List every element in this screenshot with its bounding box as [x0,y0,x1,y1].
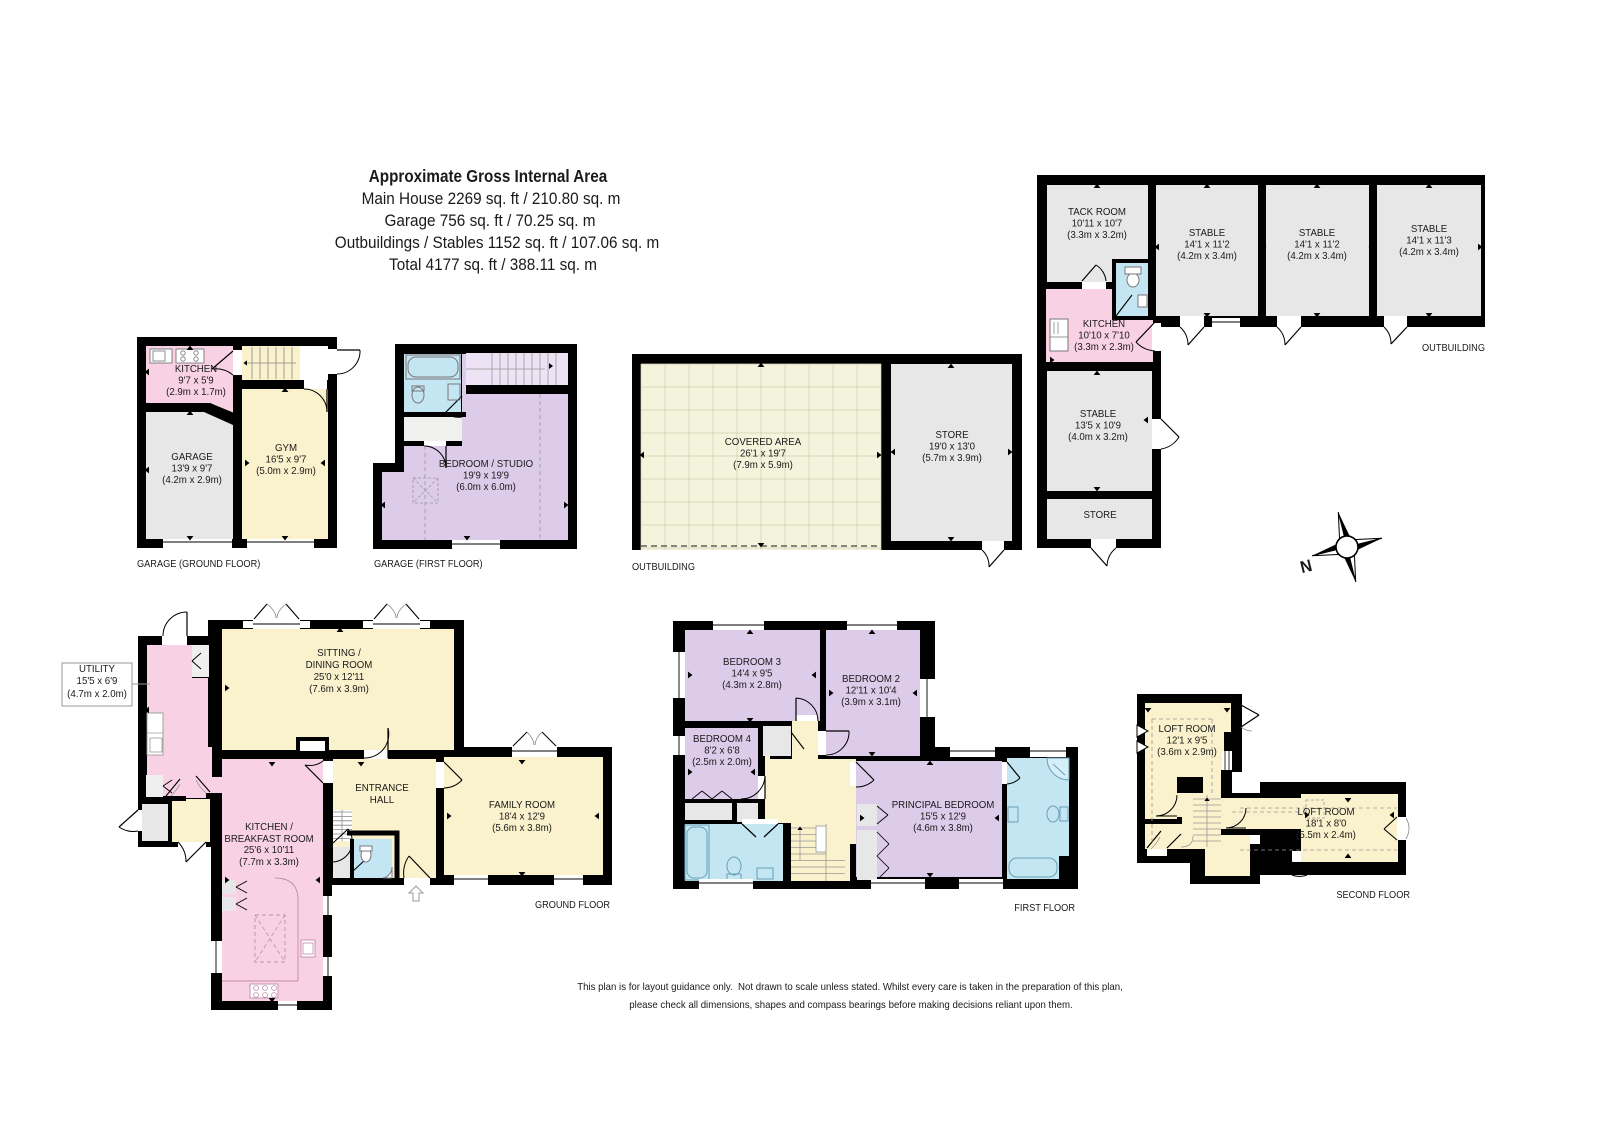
svg-text:STORE: STORE [935,430,968,441]
svg-text:BEDROOM 4: BEDROOM 4 [693,734,751,745]
svg-text:14'4 x 9'5: 14'4 x 9'5 [732,669,773,680]
svg-text:(7.6m x 3.9m): (7.6m x 3.9m) [309,684,369,695]
svg-text:Garage 756 sq. ft / 70.25 sq.: Garage 756 sq. ft / 70.25 sq. m [384,211,595,230]
svg-text:19'9 x 19'9: 19'9 x 19'9 [463,471,509,482]
svg-text:KITCHEN: KITCHEN [175,364,217,375]
svg-text:10'10 x 7'10: 10'10 x 7'10 [1078,331,1130,342]
svg-text:Approximate Gross Internal Are: Approximate Gross Internal Area [369,166,608,186]
svg-text:GYM: GYM [275,443,297,454]
svg-text:SECOND FLOOR: SECOND FLOOR [1336,890,1410,901]
svg-text:BREAKFAST ROOM: BREAKFAST ROOM [224,834,313,845]
svg-text:TACK ROOM: TACK ROOM [1068,207,1126,218]
svg-text:(3.3m x 3.2m): (3.3m x 3.2m) [1067,230,1127,241]
svg-text:LOFT ROOM: LOFT ROOM [1298,807,1355,818]
svg-text:(5.7m x 3.9m): (5.7m x 3.9m) [922,453,982,464]
svg-text:(5.6m x 3.8m): (5.6m x 3.8m) [492,823,552,834]
svg-text:(2.5m x 2.0m): (2.5m x 2.0m) [692,757,752,768]
svg-text:BEDROOM 2: BEDROOM 2 [842,674,900,685]
svg-text:14'1 x 11'2: 14'1 x 11'2 [1184,240,1230,251]
svg-text:18'4 x 12'9: 18'4 x 12'9 [499,812,545,823]
svg-text:COVERED AREA: COVERED AREA [725,437,801,448]
svg-text:Main House 2269 sq. ft / 210.8: Main House 2269 sq. ft / 210.80 sq. m [362,189,621,208]
svg-text:(4.0m x 3.2m): (4.0m x 3.2m) [1068,432,1128,443]
svg-text:STABLE: STABLE [1411,224,1447,235]
svg-text:(3.3m x 2.3m): (3.3m x 2.3m) [1074,342,1134,353]
svg-text:GARAGE: GARAGE [171,452,212,463]
svg-text:10'11 x 10'7: 10'11 x 10'7 [1072,219,1123,230]
svg-text:18'1 x 8'0: 18'1 x 8'0 [1306,819,1347,830]
svg-text:14'1 x 11'2: 14'1 x 11'2 [1294,240,1340,251]
svg-text:19'0 x 13'0: 19'0 x 13'0 [929,442,975,453]
svg-text:(5.0m x 2.9m): (5.0m x 2.9m) [256,466,316,477]
svg-text:(4.2m x 3.4m): (4.2m x 3.4m) [1399,247,1459,258]
svg-text:GARAGE (FIRST FLOOR): GARAGE (FIRST FLOOR) [374,559,483,570]
svg-text:13'9 x 9'7: 13'9 x 9'7 [172,464,213,475]
svg-text:15'5 x 12'9: 15'5 x 12'9 [920,812,966,823]
svg-text:(4.3m x 2.8m): (4.3m x 2.8m) [722,680,782,691]
svg-text:Total 4177 sq. ft / 388.11 sq.: Total 4177 sq. ft / 388.11 sq. m [389,255,597,274]
svg-text:(6.0m x 6.0m): (6.0m x 6.0m) [456,482,516,493]
svg-text:(5.5m x 2.4m): (5.5m x 2.4m) [1296,830,1356,841]
svg-text:(4.7m x 2.0m): (4.7m x 2.0m) [67,689,127,700]
svg-text:KITCHEN: KITCHEN [1083,319,1125,330]
svg-text:BEDROOM / STUDIO: BEDROOM / STUDIO [439,459,533,470]
svg-text:UTILITY: UTILITY [79,664,115,675]
svg-text:STABLE: STABLE [1080,409,1116,420]
svg-text:This plan is for layout guidan: This plan is for layout guidance only. N… [577,982,1123,993]
svg-text:9'7 x 5'9: 9'7 x 5'9 [178,376,214,387]
svg-text:FIRST FLOOR: FIRST FLOOR [1014,903,1075,914]
svg-text:(2.9m x 1.7m): (2.9m x 1.7m) [166,387,226,398]
svg-text:26'1 x 19'7: 26'1 x 19'7 [740,449,786,460]
svg-text:STABLE: STABLE [1189,228,1225,239]
svg-text:N: N [1298,556,1314,577]
svg-text:(3.9m x 3.1m): (3.9m x 3.1m) [841,697,901,708]
svg-text:OUTBUILDING: OUTBUILDING [632,562,695,573]
svg-text:BEDROOM 3: BEDROOM 3 [723,657,781,668]
svg-text:OUTBUILDING: OUTBUILDING [1422,343,1485,354]
svg-text:SITTING /: SITTING / [317,648,361,659]
svg-text:LOFT ROOM: LOFT ROOM [1159,724,1216,735]
svg-text:(4.6m x 3.8m): (4.6m x 3.8m) [913,823,973,834]
svg-text:(4.2m x 3.4m): (4.2m x 3.4m) [1177,251,1237,262]
svg-text:(4.2m x 2.9m): (4.2m x 2.9m) [162,475,222,486]
svg-text:STORE: STORE [1083,510,1116,521]
svg-text:8'2 x 6'8: 8'2 x 6'8 [704,746,740,757]
svg-text:14'1 x 11'3: 14'1 x 11'3 [1406,236,1452,247]
svg-text:Outbuildings / Stables 1152 sq: Outbuildings / Stables 1152 sq. ft / 107… [335,233,659,252]
svg-text:STABLE: STABLE [1299,228,1335,239]
svg-text:(7.7m x 3.3m): (7.7m x 3.3m) [239,857,299,868]
svg-text:15'5 x 6'9: 15'5 x 6'9 [77,676,118,687]
svg-text:(4.2m x 3.4m): (4.2m x 3.4m) [1287,251,1347,262]
svg-text:GROUND FLOOR: GROUND FLOOR [535,900,610,911]
svg-text:PRINCIPAL BEDROOM: PRINCIPAL BEDROOM [892,800,995,811]
svg-text:HALL: HALL [370,795,395,806]
svg-text:(3.6m x 2.9m): (3.6m x 2.9m) [1157,747,1217,758]
svg-text:please check all dimensions, s: please check all dimensions, shapes and … [629,1000,1072,1011]
svg-text:16'5 x 9'7: 16'5 x 9'7 [266,455,307,466]
svg-text:12'11 x 10'4: 12'11 x 10'4 [845,686,896,697]
svg-text:13'5 x 10'9: 13'5 x 10'9 [1075,421,1121,432]
svg-text:12'1 x 9'5: 12'1 x 9'5 [1167,736,1208,747]
svg-text:GARAGE (GROUND FLOOR): GARAGE (GROUND FLOOR) [137,559,260,570]
svg-text:ENTRANCE: ENTRANCE [355,783,408,794]
svg-text:25'6 x 10'11: 25'6 x 10'11 [244,845,295,856]
svg-text:25'0 x 12'11: 25'0 x 12'11 [314,672,365,683]
svg-text:(7.9m x 5.9m): (7.9m x 5.9m) [733,460,793,471]
svg-text:FAMILY ROOM: FAMILY ROOM [489,800,555,811]
svg-text:DINING ROOM: DINING ROOM [306,660,373,671]
svg-text:KITCHEN /: KITCHEN / [245,822,293,833]
